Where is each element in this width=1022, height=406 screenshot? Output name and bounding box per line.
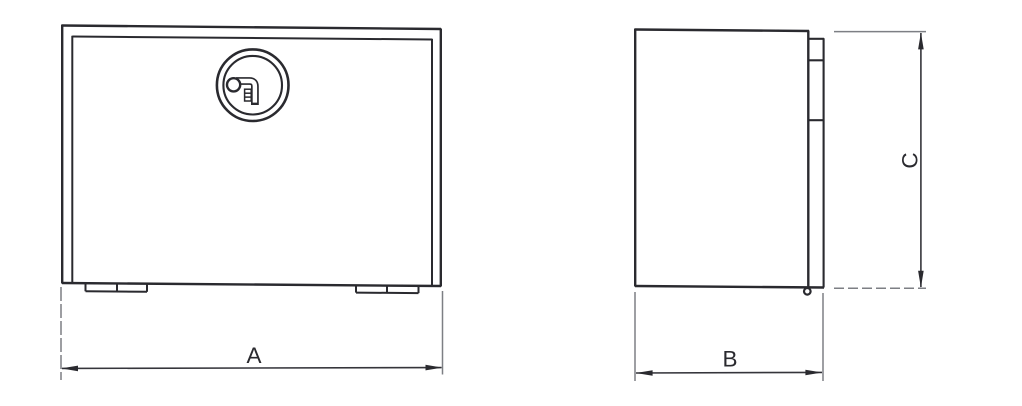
svg-text:B: B: [722, 347, 737, 372]
svg-text:C: C: [897, 152, 922, 168]
svg-text:A: A: [246, 343, 261, 368]
